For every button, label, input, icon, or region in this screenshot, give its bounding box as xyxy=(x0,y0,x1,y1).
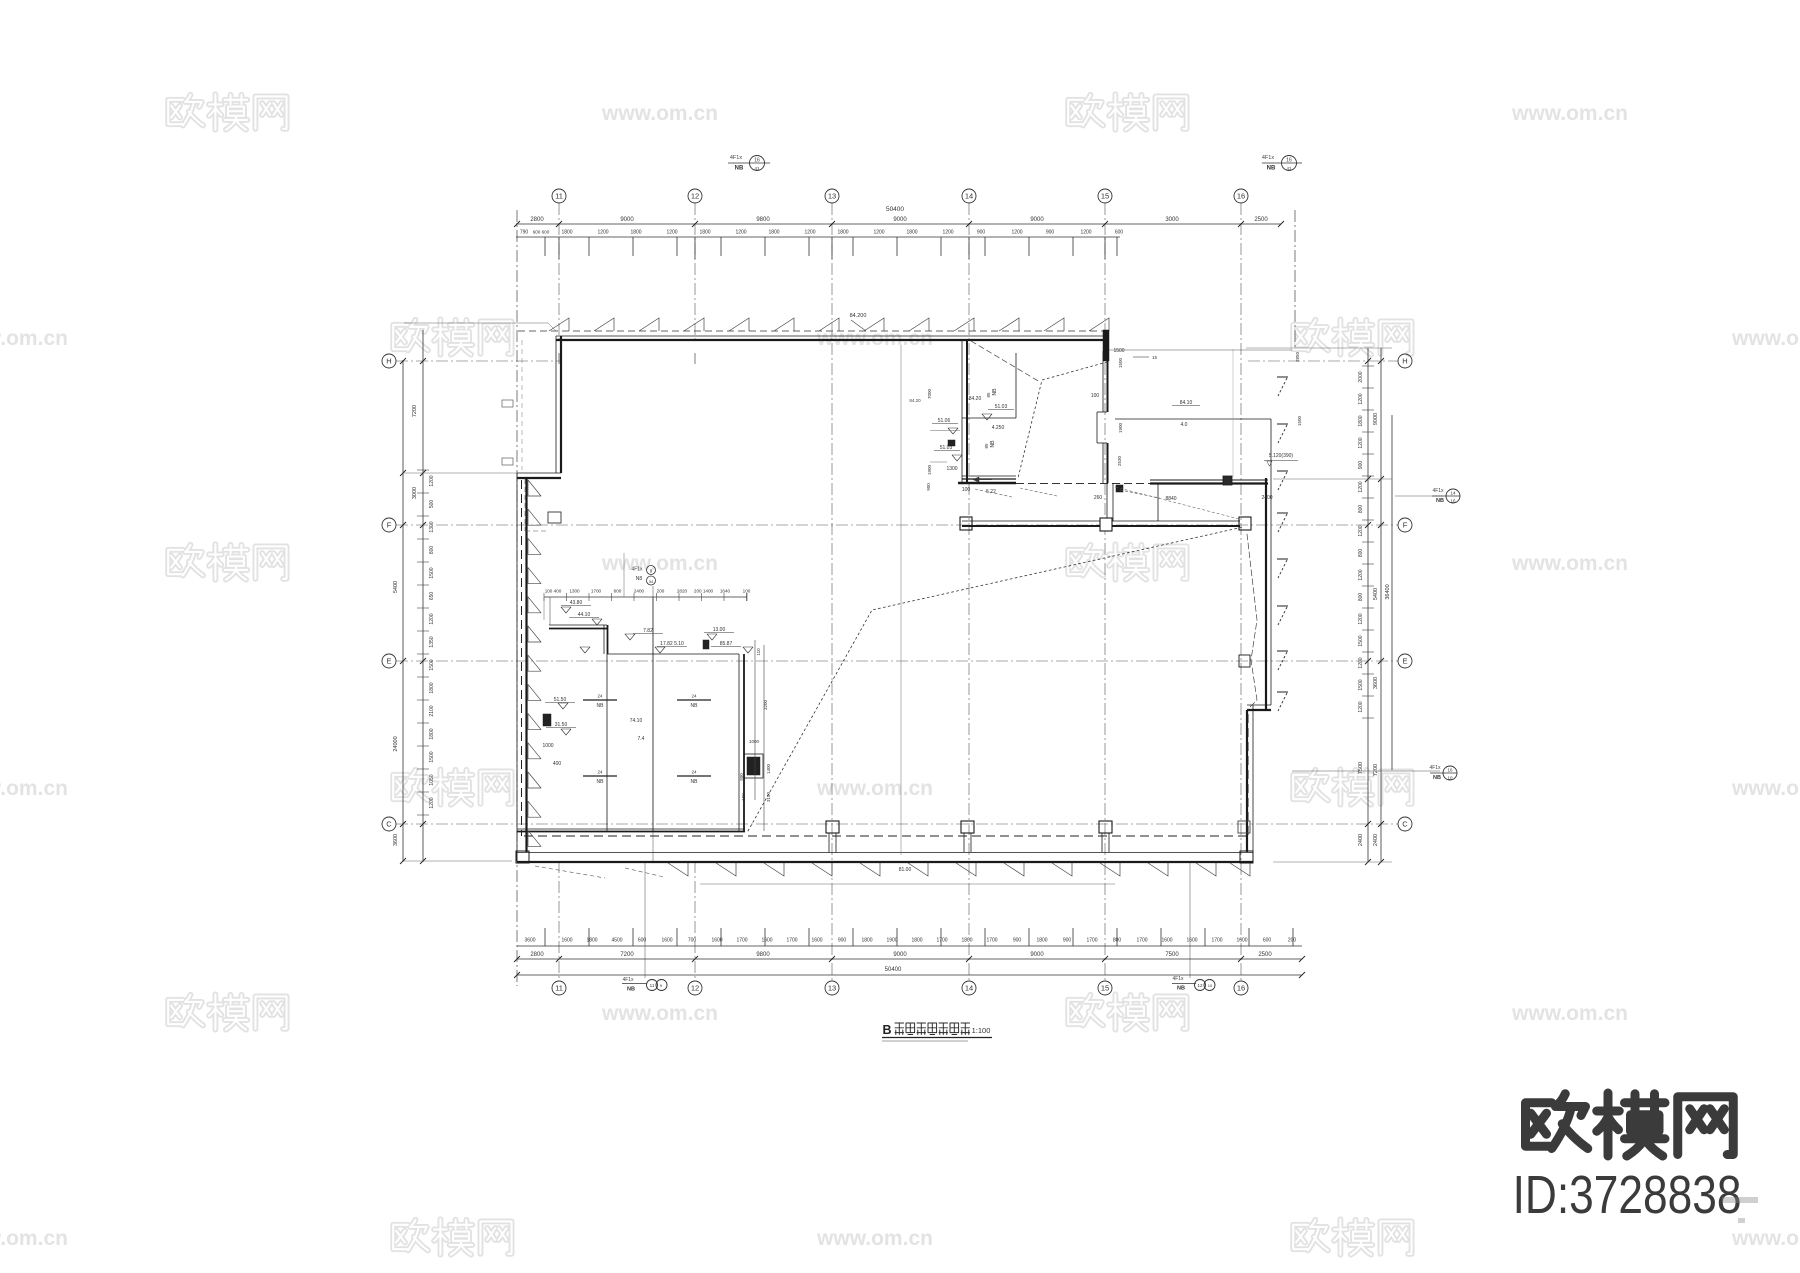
svg-text:C: C xyxy=(1402,820,1408,829)
svg-text:1400: 1400 xyxy=(766,763,771,774)
svg-text:2820: 2820 xyxy=(677,589,688,594)
svg-text:51.50: 51.50 xyxy=(554,697,567,703)
svg-text:www.om.cn: www.om.cn xyxy=(1511,552,1628,575)
svg-text:7000: 7000 xyxy=(927,388,932,399)
svg-text:3600: 3600 xyxy=(1373,677,1379,689)
svg-text:600: 600 xyxy=(638,938,647,944)
svg-text:4F1x: 4F1x xyxy=(1432,488,1444,494)
svg-text:1700: 1700 xyxy=(736,938,747,944)
svg-text:1200: 1200 xyxy=(429,475,435,486)
svg-text:36400: 36400 xyxy=(1385,584,1391,599)
svg-text:1200: 1200 xyxy=(429,797,435,808)
svg-text:1800: 1800 xyxy=(586,938,597,944)
svg-text:E: E xyxy=(1402,657,1407,666)
svg-text:NB: NB xyxy=(627,987,635,993)
svg-text:3200: 3200 xyxy=(763,699,768,710)
svg-text:15: 15 xyxy=(1101,984,1109,993)
svg-text:1600: 1600 xyxy=(811,938,822,944)
svg-text:85: 85 xyxy=(984,443,989,449)
svg-text:1300: 1300 xyxy=(429,521,435,532)
svg-text:41: 41 xyxy=(754,166,760,171)
svg-text:3000: 3000 xyxy=(1165,217,1179,223)
svg-text:650: 650 xyxy=(429,592,435,601)
svg-text:13: 13 xyxy=(828,192,836,201)
svg-text:1800: 1800 xyxy=(429,728,435,739)
svg-text:1800: 1800 xyxy=(768,230,779,236)
svg-text:1200: 1200 xyxy=(429,613,435,624)
svg-text:1800: 1800 xyxy=(906,230,917,236)
svg-text:1200: 1200 xyxy=(1358,569,1364,580)
svg-text:7200: 7200 xyxy=(620,952,634,958)
svg-text:NB: NB xyxy=(597,779,605,785)
svg-text:600 600: 600 600 xyxy=(533,230,550,235)
svg-text:2530: 2530 xyxy=(1117,455,1122,466)
svg-text:www.om.cn: www.om.cn xyxy=(1731,777,1800,800)
svg-text:15: 15 xyxy=(1152,355,1158,360)
svg-text:F: F xyxy=(387,521,392,530)
svg-text:www.om.cn: www.om.cn xyxy=(0,777,68,800)
svg-text:15: 15 xyxy=(1101,192,1109,201)
svg-text:2500: 2500 xyxy=(1258,952,1272,958)
svg-text:900: 900 xyxy=(1013,938,1022,944)
svg-text:84.10: 84.10 xyxy=(1180,400,1193,406)
svg-text:7.82: 7.82 xyxy=(643,628,653,634)
svg-text:4F1x: 4F1x xyxy=(631,567,643,573)
svg-text:7200: 7200 xyxy=(412,405,418,417)
svg-text:1200: 1200 xyxy=(1358,701,1364,712)
svg-text:2100: 2100 xyxy=(429,705,435,716)
svg-text:7.4: 7.4 xyxy=(638,736,645,742)
svg-text:500: 500 xyxy=(429,500,435,509)
svg-text:NB: NB xyxy=(691,779,699,785)
svg-text:16: 16 xyxy=(1450,499,1456,504)
svg-text:16: 16 xyxy=(1237,984,1245,993)
svg-text:H: H xyxy=(386,357,391,366)
svg-text:1200: 1200 xyxy=(1358,393,1364,404)
svg-text:260: 260 xyxy=(1094,495,1103,501)
svg-text:www.om.cn: www.om.cn xyxy=(1731,1227,1800,1250)
svg-text:1800: 1800 xyxy=(911,938,922,944)
svg-text:12: 12 xyxy=(1197,983,1203,988)
svg-text:24: 24 xyxy=(691,770,697,775)
svg-text:44.10: 44.10 xyxy=(578,612,591,618)
svg-text:43.80: 43.80 xyxy=(570,600,583,606)
svg-text:13: 13 xyxy=(828,984,836,993)
svg-text:3150: 3150 xyxy=(766,791,771,802)
svg-text:200: 200 xyxy=(657,589,665,594)
svg-text:1600: 1600 xyxy=(661,938,672,944)
svg-text:5 22: 5 22 xyxy=(986,489,996,495)
svg-text:1500: 1500 xyxy=(1118,357,1123,368)
svg-text:200 1400: 200 1400 xyxy=(694,589,714,594)
svg-text:700: 700 xyxy=(688,938,697,944)
svg-text:81.00: 81.00 xyxy=(899,867,912,873)
svg-text:9000: 9000 xyxy=(1373,413,1379,425)
svg-text:800: 800 xyxy=(1358,505,1364,514)
svg-text:1500: 1500 xyxy=(429,659,435,670)
svg-text:N8: N8 xyxy=(636,576,643,582)
svg-text:1600: 1600 xyxy=(1236,938,1247,944)
svg-text:150: 150 xyxy=(741,793,746,801)
svg-text:1700: 1700 xyxy=(936,938,947,944)
svg-text:100: 100 xyxy=(962,487,971,493)
svg-text:7200: 7200 xyxy=(1373,764,1379,776)
svg-text:www.om.cn: www.om.cn xyxy=(601,1002,718,1025)
svg-text:1200: 1200 xyxy=(1358,481,1364,492)
svg-text:84.20: 84.20 xyxy=(909,398,921,403)
svg-text:www.om.cn: www.om.cn xyxy=(816,777,933,800)
svg-text:1500: 1500 xyxy=(429,751,435,762)
svg-text:600: 600 xyxy=(1115,230,1124,236)
svg-text:3600: 3600 xyxy=(524,938,535,944)
svg-text:600: 600 xyxy=(614,589,622,594)
svg-text:17.82 5.10: 17.82 5.10 xyxy=(660,641,684,647)
svg-text:84.20: 84.20 xyxy=(969,396,982,402)
svg-text:1500: 1500 xyxy=(1113,348,1124,354)
svg-text:900: 900 xyxy=(1063,938,1072,944)
svg-text:7500: 7500 xyxy=(1165,952,1179,958)
svg-text:1200: 1200 xyxy=(1358,613,1364,624)
svg-text:2400: 2400 xyxy=(1358,834,1364,846)
svg-text:10: 10 xyxy=(1447,776,1453,781)
svg-text:50400: 50400 xyxy=(886,206,904,213)
svg-text:1200: 1200 xyxy=(1358,525,1364,536)
svg-text:900: 900 xyxy=(977,230,986,236)
svg-text:1200: 1200 xyxy=(942,230,953,236)
svg-text:1800: 1800 xyxy=(837,230,848,236)
svg-text:800: 800 xyxy=(1358,549,1364,558)
svg-text:www.om.cn: www.om.cn xyxy=(0,1227,68,1250)
svg-text:www.om.cn: www.om.cn xyxy=(1731,327,1800,350)
svg-text:NB: NB xyxy=(597,703,605,709)
svg-text:1700: 1700 xyxy=(1211,938,1222,944)
svg-text:1050: 1050 xyxy=(429,774,435,785)
svg-text:1600: 1600 xyxy=(711,938,722,944)
svg-text:9000: 9000 xyxy=(1030,217,1044,223)
svg-text:31.50: 31.50 xyxy=(555,722,568,728)
svg-text:16: 16 xyxy=(1237,192,1245,201)
svg-text:1500: 1500 xyxy=(1358,635,1364,646)
svg-text:NB: NB xyxy=(992,388,998,396)
svg-text:2800: 2800 xyxy=(530,217,544,223)
svg-text:1700: 1700 xyxy=(1086,938,1097,944)
svg-text:1200: 1200 xyxy=(873,230,884,236)
svg-text:5.120(390): 5.120(390) xyxy=(1269,453,1294,459)
svg-text:16: 16 xyxy=(1447,768,1453,773)
svg-text:9800: 9800 xyxy=(756,952,770,958)
svg-text:9000: 9000 xyxy=(620,217,634,223)
svg-text:1900: 1900 xyxy=(1118,422,1123,433)
svg-text:900: 900 xyxy=(1358,461,1364,470)
svg-text:4F1x: 4F1x xyxy=(1172,976,1184,982)
svg-text:NB: NB xyxy=(1433,775,1441,781)
svg-text:NB: NB xyxy=(990,440,996,448)
svg-text:1900: 1900 xyxy=(927,464,932,475)
svg-text:H: H xyxy=(1402,357,1407,366)
svg-text:12: 12 xyxy=(691,192,699,201)
svg-text:4F1x: 4F1x xyxy=(1429,765,1441,771)
svg-text:www.om.cn: www.om.cn xyxy=(601,102,718,125)
svg-text:24000: 24000 xyxy=(393,736,399,751)
svg-text:5400: 5400 xyxy=(1373,588,1379,600)
svg-text:74.10: 74.10 xyxy=(630,718,643,724)
svg-text:1000: 1000 xyxy=(542,743,553,749)
svg-text:600: 600 xyxy=(1263,938,1272,944)
svg-text:2400: 2400 xyxy=(634,589,645,594)
svg-text:14: 14 xyxy=(965,984,973,993)
svg-text:F: F xyxy=(1403,521,1408,530)
svg-text:C: C xyxy=(386,820,392,829)
svg-text:9000: 9000 xyxy=(893,217,907,223)
svg-text:800: 800 xyxy=(1358,593,1364,602)
svg-text:1800: 1800 xyxy=(699,230,710,236)
svg-text:1200: 1200 xyxy=(666,230,677,236)
svg-text:800: 800 xyxy=(1113,938,1122,944)
svg-text:2850: 2850 xyxy=(1295,351,1300,362)
svg-text:1800: 1800 xyxy=(630,230,641,236)
svg-text:14: 14 xyxy=(1450,491,1456,496)
svg-text:NB: NB xyxy=(735,166,744,172)
svg-text:11: 11 xyxy=(555,984,563,993)
svg-text:1200: 1200 xyxy=(1080,230,1091,236)
svg-text:1800: 1800 xyxy=(1358,415,1364,426)
svg-text:1000: 1000 xyxy=(749,739,760,744)
svg-text:10: 10 xyxy=(1208,983,1213,988)
svg-text:1700: 1700 xyxy=(591,589,602,594)
svg-text:100: 100 xyxy=(1091,393,1100,399)
svg-text:7500: 7500 xyxy=(1358,762,1364,774)
svg-text:12: 12 xyxy=(691,984,699,993)
svg-text:790: 790 xyxy=(520,230,529,236)
svg-text:1200: 1200 xyxy=(1358,437,1364,448)
svg-text:2500: 2500 xyxy=(1254,217,1268,223)
svg-text:1800: 1800 xyxy=(1036,938,1047,944)
svg-text:200: 200 xyxy=(1288,938,1297,944)
svg-text:16: 16 xyxy=(754,158,760,164)
svg-text:2000: 2000 xyxy=(1358,371,1364,382)
svg-text:NB: NB xyxy=(1436,498,1444,504)
svg-text:1900: 1900 xyxy=(886,938,897,944)
svg-text:1500: 1500 xyxy=(429,567,435,578)
svg-text:110: 110 xyxy=(756,648,761,656)
svg-text:9000: 9000 xyxy=(1030,952,1044,958)
svg-text:1600: 1600 xyxy=(1161,938,1172,944)
svg-text:4F1x: 4F1x xyxy=(1262,155,1274,161)
svg-text:1500: 1500 xyxy=(1297,415,1302,426)
svg-text:1800: 1800 xyxy=(961,938,972,944)
svg-text:3000: 3000 xyxy=(412,487,418,499)
svg-text:41: 41 xyxy=(1286,166,1292,171)
svg-text:800: 800 xyxy=(429,546,435,555)
svg-text:1600: 1600 xyxy=(561,938,572,944)
svg-text:9000: 9000 xyxy=(893,952,907,958)
svg-text:84.200: 84.200 xyxy=(850,313,867,319)
svg-text:24: 24 xyxy=(597,694,603,699)
svg-text:4500: 4500 xyxy=(611,938,622,944)
svg-text:3600: 3600 xyxy=(393,834,399,846)
svg-text:900: 900 xyxy=(926,483,931,491)
svg-text:100: 100 xyxy=(743,589,751,594)
svg-text:16: 16 xyxy=(1286,158,1292,164)
svg-text:www.om.cn: www.om.cn xyxy=(1511,1002,1628,1025)
svg-text:1800: 1800 xyxy=(561,230,572,236)
svg-text:900: 900 xyxy=(739,773,744,781)
svg-text:85: 85 xyxy=(986,392,991,398)
svg-text:www.om.cn: www.om.cn xyxy=(816,1227,933,1250)
svg-text:5400: 5400 xyxy=(393,581,399,593)
svg-text:E: E xyxy=(386,657,391,666)
svg-text:1200: 1200 xyxy=(804,230,815,236)
svg-text:NB: NB xyxy=(691,703,699,709)
svg-text:14: 14 xyxy=(965,192,973,201)
svg-text:400: 400 xyxy=(553,761,562,767)
svg-text:1:100: 1:100 xyxy=(972,1026,991,1035)
svg-text:www.om.cn: www.om.cn xyxy=(816,327,933,350)
svg-text:100 400: 100 400 xyxy=(545,589,562,594)
svg-text:4.250: 4.250 xyxy=(992,425,1005,431)
svg-text:50400: 50400 xyxy=(885,967,902,973)
svg-text:www.om.cn: www.om.cn xyxy=(0,327,68,350)
svg-text:900: 900 xyxy=(1046,230,1055,236)
svg-text:34: 34 xyxy=(649,579,654,584)
svg-text:85.87: 85.87 xyxy=(720,641,733,647)
svg-text:www.om.cn: www.om.cn xyxy=(1511,102,1628,125)
svg-text:1200: 1200 xyxy=(1358,657,1364,668)
svg-text:2800: 2800 xyxy=(530,952,544,958)
svg-text:8840: 8840 xyxy=(1165,496,1176,502)
svg-text:1350: 1350 xyxy=(429,636,435,647)
svg-text:ID:3728838: ID:3728838 xyxy=(1513,1165,1742,1225)
svg-text:1200: 1200 xyxy=(597,230,608,236)
svg-text:1700: 1700 xyxy=(1136,938,1147,944)
svg-text:2400: 2400 xyxy=(1261,495,1272,501)
svg-text:24: 24 xyxy=(691,694,697,699)
svg-text:NB: NB xyxy=(1177,986,1185,992)
svg-text:1700: 1700 xyxy=(786,938,797,944)
svg-text:B: B xyxy=(882,1023,891,1037)
svg-text:NB: NB xyxy=(1267,166,1276,172)
svg-text:9800: 9800 xyxy=(756,217,770,223)
svg-text:51.03: 51.03 xyxy=(995,404,1008,410)
svg-text:4F1x: 4F1x xyxy=(622,977,634,983)
svg-text:24: 24 xyxy=(597,770,603,775)
svg-text:900: 900 xyxy=(838,938,847,944)
svg-text:4F1x: 4F1x xyxy=(730,155,742,161)
svg-text:1640: 1640 xyxy=(720,589,731,594)
svg-text:1600: 1600 xyxy=(1186,938,1197,944)
svg-text:2400: 2400 xyxy=(1373,834,1379,846)
svg-text:11: 11 xyxy=(555,192,563,201)
svg-text:4.0: 4.0 xyxy=(1181,422,1188,428)
svg-text:www.om.cn: www.om.cn xyxy=(601,552,718,575)
svg-text:1200: 1200 xyxy=(1011,230,1022,236)
svg-text:1700: 1700 xyxy=(986,938,997,944)
svg-text:1500: 1500 xyxy=(1358,679,1364,690)
svg-text:13.00: 13.00 xyxy=(713,627,726,633)
svg-text:11: 11 xyxy=(650,983,655,988)
svg-text:1800: 1800 xyxy=(861,938,872,944)
svg-text:1300: 1300 xyxy=(946,466,957,472)
svg-text:1300: 1300 xyxy=(569,589,580,594)
svg-text:51.06: 51.06 xyxy=(938,418,951,424)
svg-text:1200: 1200 xyxy=(735,230,746,236)
svg-text:1600: 1600 xyxy=(761,938,772,944)
svg-text:1800: 1800 xyxy=(429,682,435,693)
